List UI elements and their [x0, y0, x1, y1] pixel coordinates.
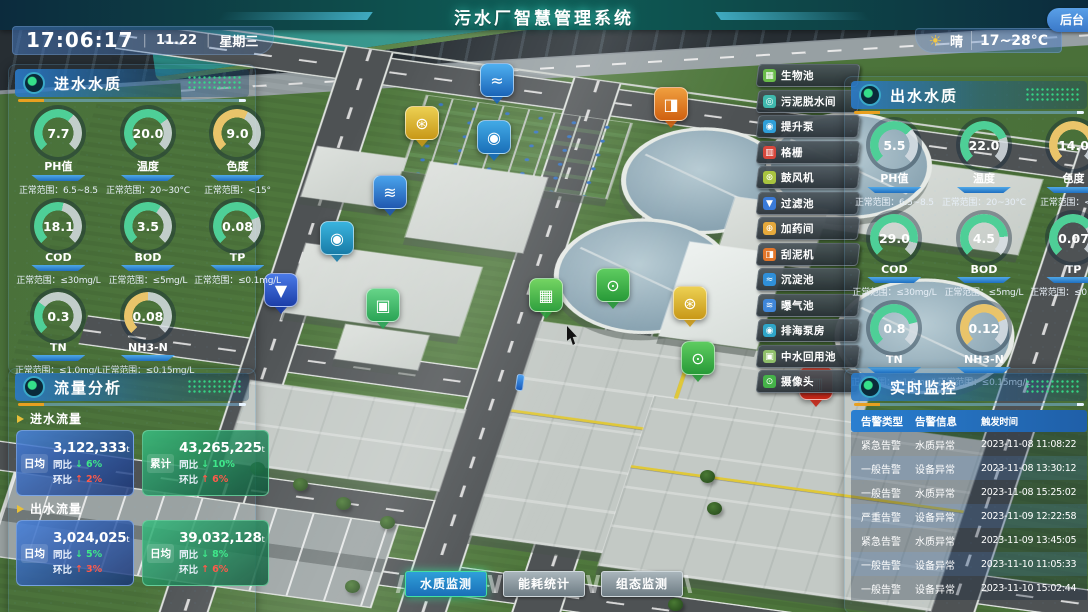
weather-display: ☀ 晴 17~28°C — [915, 28, 1062, 53]
table-row: 紧急告警水质异常2023-11-08 11:08:22 — [851, 432, 1087, 456]
tree — [345, 580, 360, 593]
outflow-daily-card: 日均 3,024,025t 同比↓5% 环比↑3% — [16, 520, 134, 586]
tab-energy-statistics[interactable]: 能耗统计 — [503, 571, 585, 597]
reuse-marker-icon: ▣ — [375, 296, 390, 315]
inlet-quality-panel: 进水水质 7.7PH值正常范围：6.5~8.5 20.0温度正常范围：20~30… — [8, 64, 256, 374]
gauge-tp: 0.07TP正常范围：≤0.1mg/L — [1030, 211, 1088, 298]
tree — [380, 516, 395, 529]
flow-value: 39,032,128 — [179, 530, 261, 546]
pump-building — [405, 162, 547, 253]
camera-icon: ⊙ — [763, 375, 776, 388]
divider — [854, 403, 1084, 406]
tab-scada-monitor[interactable]: 组态监测 — [601, 571, 683, 597]
scraper-marker-icon: ◨ — [663, 95, 678, 114]
inflow-section-label: 进水流量 — [30, 410, 82, 427]
table-row: 一般告警设备异常2023-11-10 15:02:44 — [851, 576, 1087, 600]
bottom-tab-bar: 水质监测 能耗统计 组态监测 — [405, 571, 683, 597]
dosing-room-icon: ⊕ — [763, 222, 776, 235]
blower-icon: ⊛ — [763, 171, 776, 184]
down-arrow-icon: ↓ — [75, 459, 83, 470]
sea-discharge-pump-icon: ◉ — [763, 324, 776, 337]
table-row: 严重告警设备异常2023-11-09 12:22:58 — [851, 504, 1087, 528]
gauge-ph: 5.5PH值正常范围：6.5~8.5 — [851, 118, 938, 208]
tree — [707, 502, 722, 515]
gauge-bod: 3.5BOD正常范围：≤5mg/L — [102, 199, 194, 286]
panel-header: 流量分析 — [15, 373, 249, 401]
sedimentation-marker-icon: ≈ — [490, 71, 503, 90]
panel-header-icon — [859, 376, 881, 398]
triangle-icon — [17, 415, 24, 423]
aeration-marker-icon: ≋ — [383, 183, 396, 202]
aeration-pool-icon: ≋ — [763, 299, 776, 312]
tree — [700, 470, 715, 483]
down-arrow-icon: ↓ — [201, 459, 209, 470]
panel-header: 实时监控 — [851, 373, 1087, 401]
table-row: 一般告警水质异常2023-11-08 15:25:02 — [851, 480, 1087, 504]
backstage-button[interactable]: 后台 — [1047, 8, 1088, 32]
panel-title: 实时监控 — [890, 377, 958, 398]
date: 11.22 — [156, 33, 197, 48]
panel-header-icon — [859, 84, 881, 106]
up-arrow-icon: ↑ — [201, 564, 209, 575]
tree — [293, 478, 308, 491]
table-row: 一般告警设备异常2023-11-08 13:30:12 — [851, 456, 1087, 480]
tree — [668, 598, 683, 611]
up-arrow-icon: ↑ — [75, 474, 83, 485]
sedimentation-marker[interactable]: ≈ — [480, 63, 514, 104]
water-reuse-pool-icon: ▣ — [763, 350, 776, 363]
outlet-quality-panel: 出水水质 5.5PH值正常范围：6.5~8.5 22.0温度正常范围：20~30… — [844, 76, 1088, 374]
divider — [18, 403, 246, 406]
gauge-tn: 0.3TN正常范围：≤1.0mg/L — [15, 289, 102, 376]
weather-condition: 晴 — [950, 31, 972, 50]
flow-value: 43,265,225 — [179, 440, 261, 456]
gauge-temperature: 20.0温度正常范围：20~30°C — [102, 106, 194, 196]
lift-pump-icon: ◉ — [763, 120, 776, 133]
clock: 17:06:17 — [26, 28, 134, 52]
sun-icon: ☀ — [929, 32, 942, 50]
camera-marker-icon: ⊙ — [606, 276, 619, 295]
filter-pool-icon: ▼ — [763, 197, 776, 210]
scraper-marker[interactable]: ◨ — [654, 87, 688, 128]
header-decoration — [217, 12, 373, 20]
table-row: 紧急告警水质异常2023-11-09 13:45:05 — [851, 528, 1087, 552]
panel-title: 出水水质 — [890, 85, 958, 106]
outflow-total-card: 日均 39,032,128t 同比↓8% 环比↑6% — [142, 520, 269, 586]
sea-pump-marker[interactable]: ◉ — [320, 221, 354, 262]
divider — [854, 111, 1084, 114]
blower-marker[interactable]: ⊛ — [405, 106, 439, 147]
triangle-icon — [17, 505, 24, 513]
gauge-cod: 29.0COD正常范围：≤30mg/L — [851, 211, 938, 298]
up-arrow-icon: ↑ — [201, 474, 209, 485]
page-title: 污水厂智慧管理系统 — [454, 4, 634, 29]
card-tag: 累计 — [147, 454, 174, 473]
panel-header: 出水水质 — [851, 81, 1087, 109]
gauge-chroma: 9.0色度正常范围：<15° — [194, 106, 281, 196]
mud-scraper-icon: ◨ — [763, 248, 776, 261]
sludge-dewatering-icon: ◎ — [763, 95, 776, 108]
down-arrow-icon: ↓ — [201, 549, 209, 560]
flow-analysis-panel: 流量分析 进水流量 日均 3,122,333t 同比↓6% 环比↑2% 累计 4… — [8, 368, 256, 612]
gauge-cod: 18.1COD正常范围：≤30mg/L — [15, 199, 102, 286]
camera-marker-1[interactable]: ⊙ — [596, 268, 630, 309]
panel-header-icon — [23, 72, 45, 94]
flow-value: 3,122,333 — [53, 440, 126, 456]
pump-marker-icon: ◉ — [487, 128, 501, 147]
table-header: 告警类型告警信息触发时间 — [851, 410, 1087, 432]
sedimentation-pool-icon: ≈ — [763, 273, 776, 286]
camera-marker-icon: ⊙ — [691, 349, 704, 368]
camera-marker-2[interactable]: ⊙ — [681, 341, 715, 382]
dashboard: ≈ ◨ ⊛ ◉ ≋ ◉ ▼ ▣ ▦ ⊙ ⊛ ⊙ ▥ 污水厂智慧管理系统 17:0… — [0, 0, 1088, 612]
card-tag: 日均 — [147, 544, 174, 563]
flow-value: 3,024,025 — [53, 530, 126, 546]
fan-marker-icon: ⊛ — [683, 294, 696, 313]
weekday: 星期三 — [219, 31, 258, 50]
reuse-marker[interactable]: ▣ — [366, 288, 400, 329]
card-tag: 日均 — [21, 454, 48, 473]
header-decoration — [715, 12, 871, 20]
panel-title: 进水水质 — [54, 73, 122, 94]
panel-header: 进水水质 — [15, 69, 249, 97]
bio-marker-icon: ▦ — [538, 286, 553, 305]
up-arrow-icon: ↑ — [75, 564, 83, 575]
bio-pool-icon: ▦ — [763, 69, 776, 82]
tab-water-quality-monitor[interactable]: 水质监测 — [405, 571, 487, 597]
down-arrow-icon: ↓ — [75, 549, 83, 560]
datetime-display: 17:06:17 | 11.22 | 星期三 — [12, 26, 274, 55]
gauge-ph: 7.7PH值正常范围：6.5~8.5 — [15, 106, 102, 196]
gauge-temperature: 22.0温度正常范围：20~30°C — [938, 118, 1030, 208]
divider — [18, 99, 246, 102]
table-row: 一般告警设备异常2023-11-10 11:05:33 — [851, 552, 1087, 576]
panel-title: 流量分析 — [54, 377, 122, 398]
fan-marker[interactable]: ⊛ — [673, 286, 707, 327]
pump-marker[interactable]: ◉ — [477, 120, 511, 161]
panel-header-icon — [23, 376, 45, 398]
aeration-marker[interactable]: ≋ — [373, 175, 407, 216]
realtime-monitor-panel: 实时监控 告警类型告警信息触发时间 紧急告警水质异常2023-11-08 11:… — [844, 368, 1088, 612]
alarm-table: 告警类型告警信息触发时间 紧急告警水质异常2023-11-08 11:08:22… — [851, 410, 1087, 600]
sea-pump-marker-icon: ◉ — [330, 229, 344, 248]
tree — [336, 497, 351, 510]
gauge-bod: 4.5BOD正常范围：≤5mg/L — [938, 211, 1030, 298]
gauge-tp: 0.08TP正常范围：≤0.1mg/L — [194, 199, 281, 286]
outflow-section-label: 出水流量 — [30, 500, 82, 517]
gauge-nh3n: 0.08NH3-N正常范围：≤0.15mg/L — [102, 289, 194, 376]
blower-marker-icon: ⊛ — [415, 114, 428, 133]
bio-marker[interactable]: ▦ — [529, 278, 563, 319]
temperature-range: 17~28°C — [980, 33, 1048, 49]
inflow-daily-card: 日均 3,122,333t 同比↓6% 环比↑2% — [16, 430, 134, 496]
inflow-total-card: 累计 43,265,225t 同比↓10% 环比↑6% — [142, 430, 269, 496]
bar-screen-icon: ▥ — [763, 146, 776, 159]
gauge-chroma: 14.0色度正常范围：<15° — [1030, 118, 1088, 208]
card-tag: 日均 — [21, 544, 48, 563]
